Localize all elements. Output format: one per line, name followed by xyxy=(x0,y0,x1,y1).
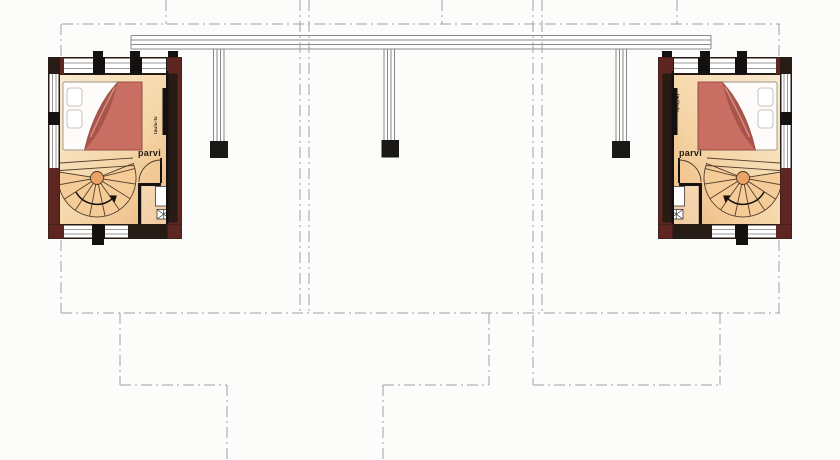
shower-cabinet xyxy=(156,187,167,207)
window xyxy=(105,226,128,238)
loft-unit-right: parvi taulu-tv xyxy=(658,57,792,239)
floor-plan-canvas: parvi taulu-tv parvi taulu-tv xyxy=(0,0,840,460)
wall-tv-icon xyxy=(163,88,167,135)
tv-label: taulu-tv xyxy=(675,94,680,134)
window xyxy=(50,74,59,112)
pillow xyxy=(67,110,82,128)
post-footing-icon xyxy=(382,140,400,158)
pillow xyxy=(67,88,82,106)
window xyxy=(50,125,59,168)
pergola-beam xyxy=(131,36,711,50)
pergola-post-right xyxy=(612,49,630,158)
post-footing-icon xyxy=(612,141,630,158)
pergola-post-center xyxy=(382,49,400,158)
bed xyxy=(63,82,142,150)
window xyxy=(142,59,167,74)
partition-wall xyxy=(138,183,161,186)
pergola-post-left xyxy=(210,49,228,158)
window xyxy=(64,226,92,238)
wall-bottom xyxy=(48,224,182,239)
loft-label: parvi xyxy=(679,149,702,158)
wall-top xyxy=(48,57,182,75)
window xyxy=(64,59,93,74)
stair-newel xyxy=(91,172,104,185)
post-footing-icon xyxy=(210,141,228,158)
partition-wall xyxy=(138,183,141,224)
loft-label: parvi xyxy=(138,149,161,158)
loft-unit-left-drawing xyxy=(48,57,182,239)
lower-floor-outline xyxy=(61,313,780,460)
wall-left xyxy=(48,57,60,239)
window xyxy=(105,59,130,74)
loft-unit-left: parvi taulu-tv xyxy=(48,57,182,239)
tv-label: taulu-tv xyxy=(154,94,159,134)
